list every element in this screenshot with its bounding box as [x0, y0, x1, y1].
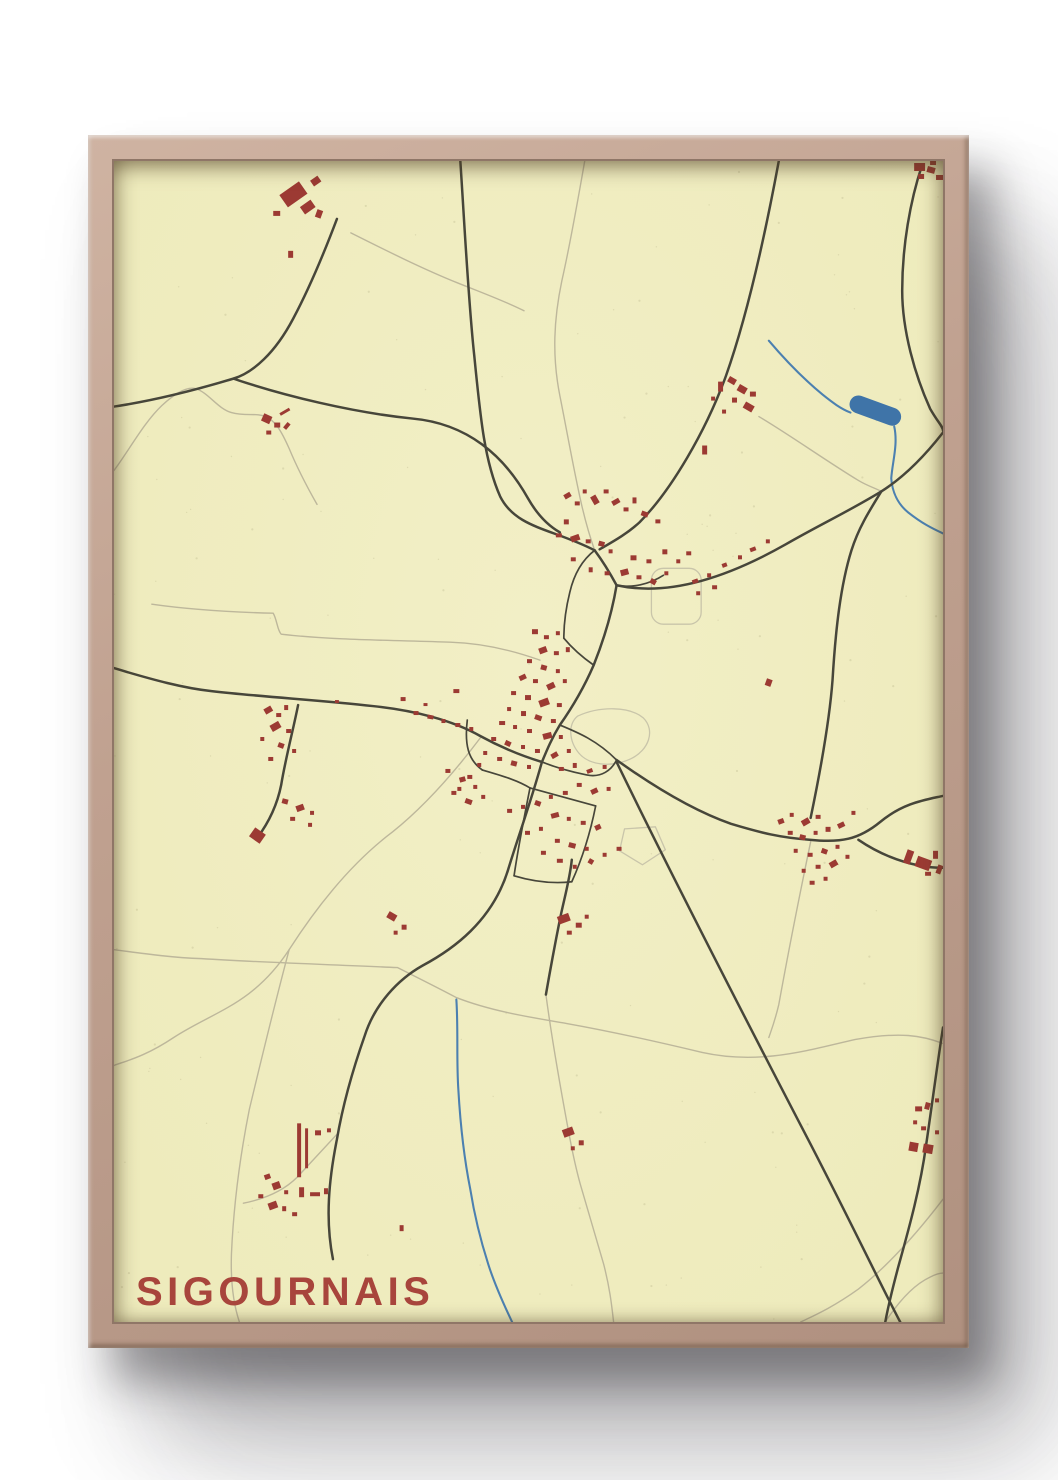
town-map [114, 161, 943, 1322]
map-paper: SIGOURNAIS [114, 161, 943, 1322]
map-background [114, 161, 943, 1322]
poster-photo: SIGOURNAIS [0, 0, 1058, 1480]
poster-frame: SIGOURNAIS [88, 135, 969, 1348]
map-title: SIGOURNAIS [136, 1272, 434, 1312]
